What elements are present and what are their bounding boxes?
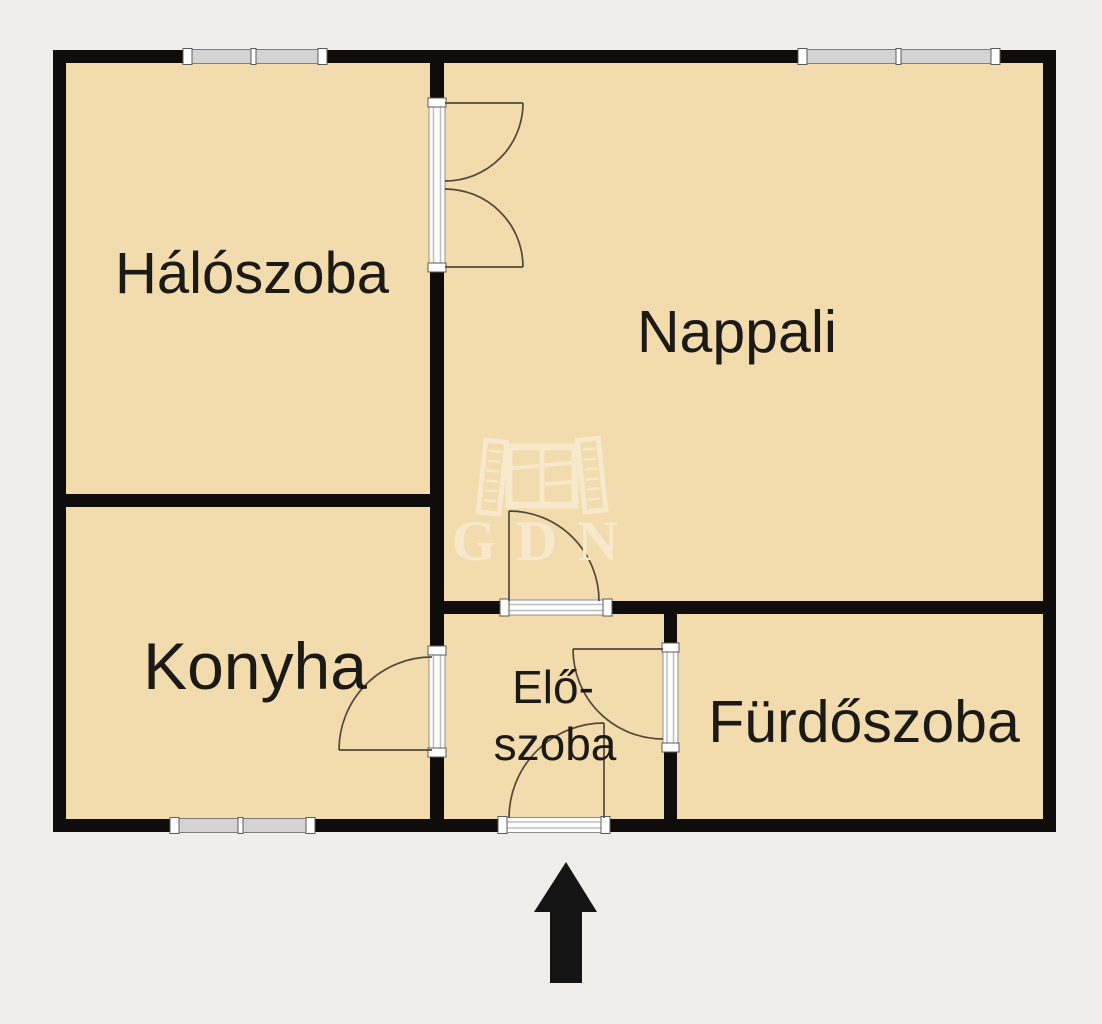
door-frame-kitchen-hall <box>428 646 446 757</box>
door-frame-livingroom-hall <box>500 599 612 616</box>
wall-bedroom-kitchen <box>53 494 444 507</box>
room-label-livingroom: Nappali <box>637 299 837 365</box>
door-frame-hall-bathroom <box>662 643 679 752</box>
floor-plan-page: GDN Hálószoba Nappali Konyha Elő- szoba … <box>0 0 1102 1024</box>
window-livingroom-top <box>798 49 1000 65</box>
wall-left <box>53 50 66 832</box>
floor-plan-drawing: GDN Hálószoba Nappali Konyha Elő- szoba … <box>0 0 1102 1024</box>
wall-right <box>1043 50 1056 832</box>
room-label-hall-line1: Elő- <box>512 661 594 713</box>
entrance-arrow-up-icon <box>534 862 597 983</box>
door-frame-entrance <box>498 817 610 834</box>
room-label-bedroom: Hálószoba <box>115 241 390 306</box>
room-label-bathroom: Fürdőszoba <box>708 689 1020 755</box>
door-frame-bedroom-livingroom <box>428 98 446 272</box>
window-bedroom-top <box>183 49 327 65</box>
window-kitchen-bottom <box>170 818 315 834</box>
watermark-text: GDN <box>452 510 639 573</box>
room-label-kitchen: Konyha <box>143 629 367 703</box>
room-label-hall-line2: szoba <box>494 718 617 770</box>
